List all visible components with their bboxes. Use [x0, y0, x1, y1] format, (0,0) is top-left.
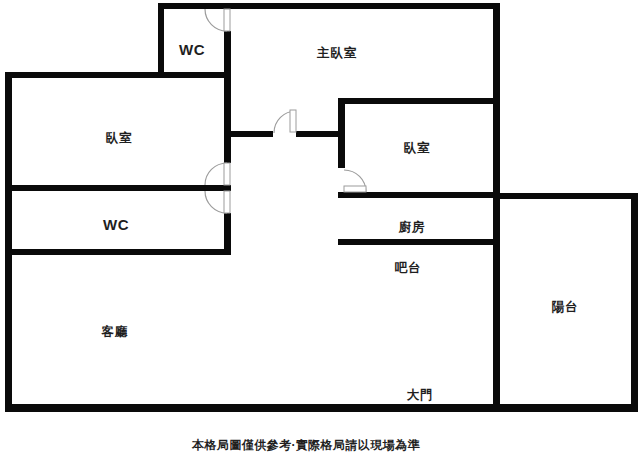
- room-label-master-bedroom: 主臥室: [317, 47, 358, 60]
- room-label-living-room: 客廳: [102, 326, 129, 339]
- door-leaf-bedroom-left: [224, 163, 230, 185]
- room-label-balcony: 陽台: [552, 301, 579, 314]
- room-label-bedroom-left: 臥室: [106, 132, 133, 145]
- room-label-bar-counter: 吧台: [395, 262, 422, 275]
- disclaimer-text: 本格局圖僅供參考·實際格局請以現場為準: [192, 439, 420, 451]
- room-label-wc-lower: WC: [103, 217, 129, 232]
- room-label-bedroom-right: 臥室: [404, 142, 431, 155]
- door-leaf-wc-top: [224, 9, 230, 31]
- door-leaf-bedroom-right: [344, 186, 366, 192]
- room-label-main-entrance: 大門: [407, 389, 434, 402]
- door-leaf-master-bedroom: [290, 110, 296, 132]
- room-label-kitchen: 廚房: [399, 221, 426, 234]
- floor-plan: WC 主臥室 臥室 臥室 WC 廚房 吧台 客廳 陽台 大門 本格局圖僅供參考·…: [0, 0, 640, 458]
- door-swing-layer: [0, 0, 640, 458]
- door-leaf-wc-lower: [224, 191, 230, 213]
- room-label-wc-top: WC: [179, 42, 205, 57]
